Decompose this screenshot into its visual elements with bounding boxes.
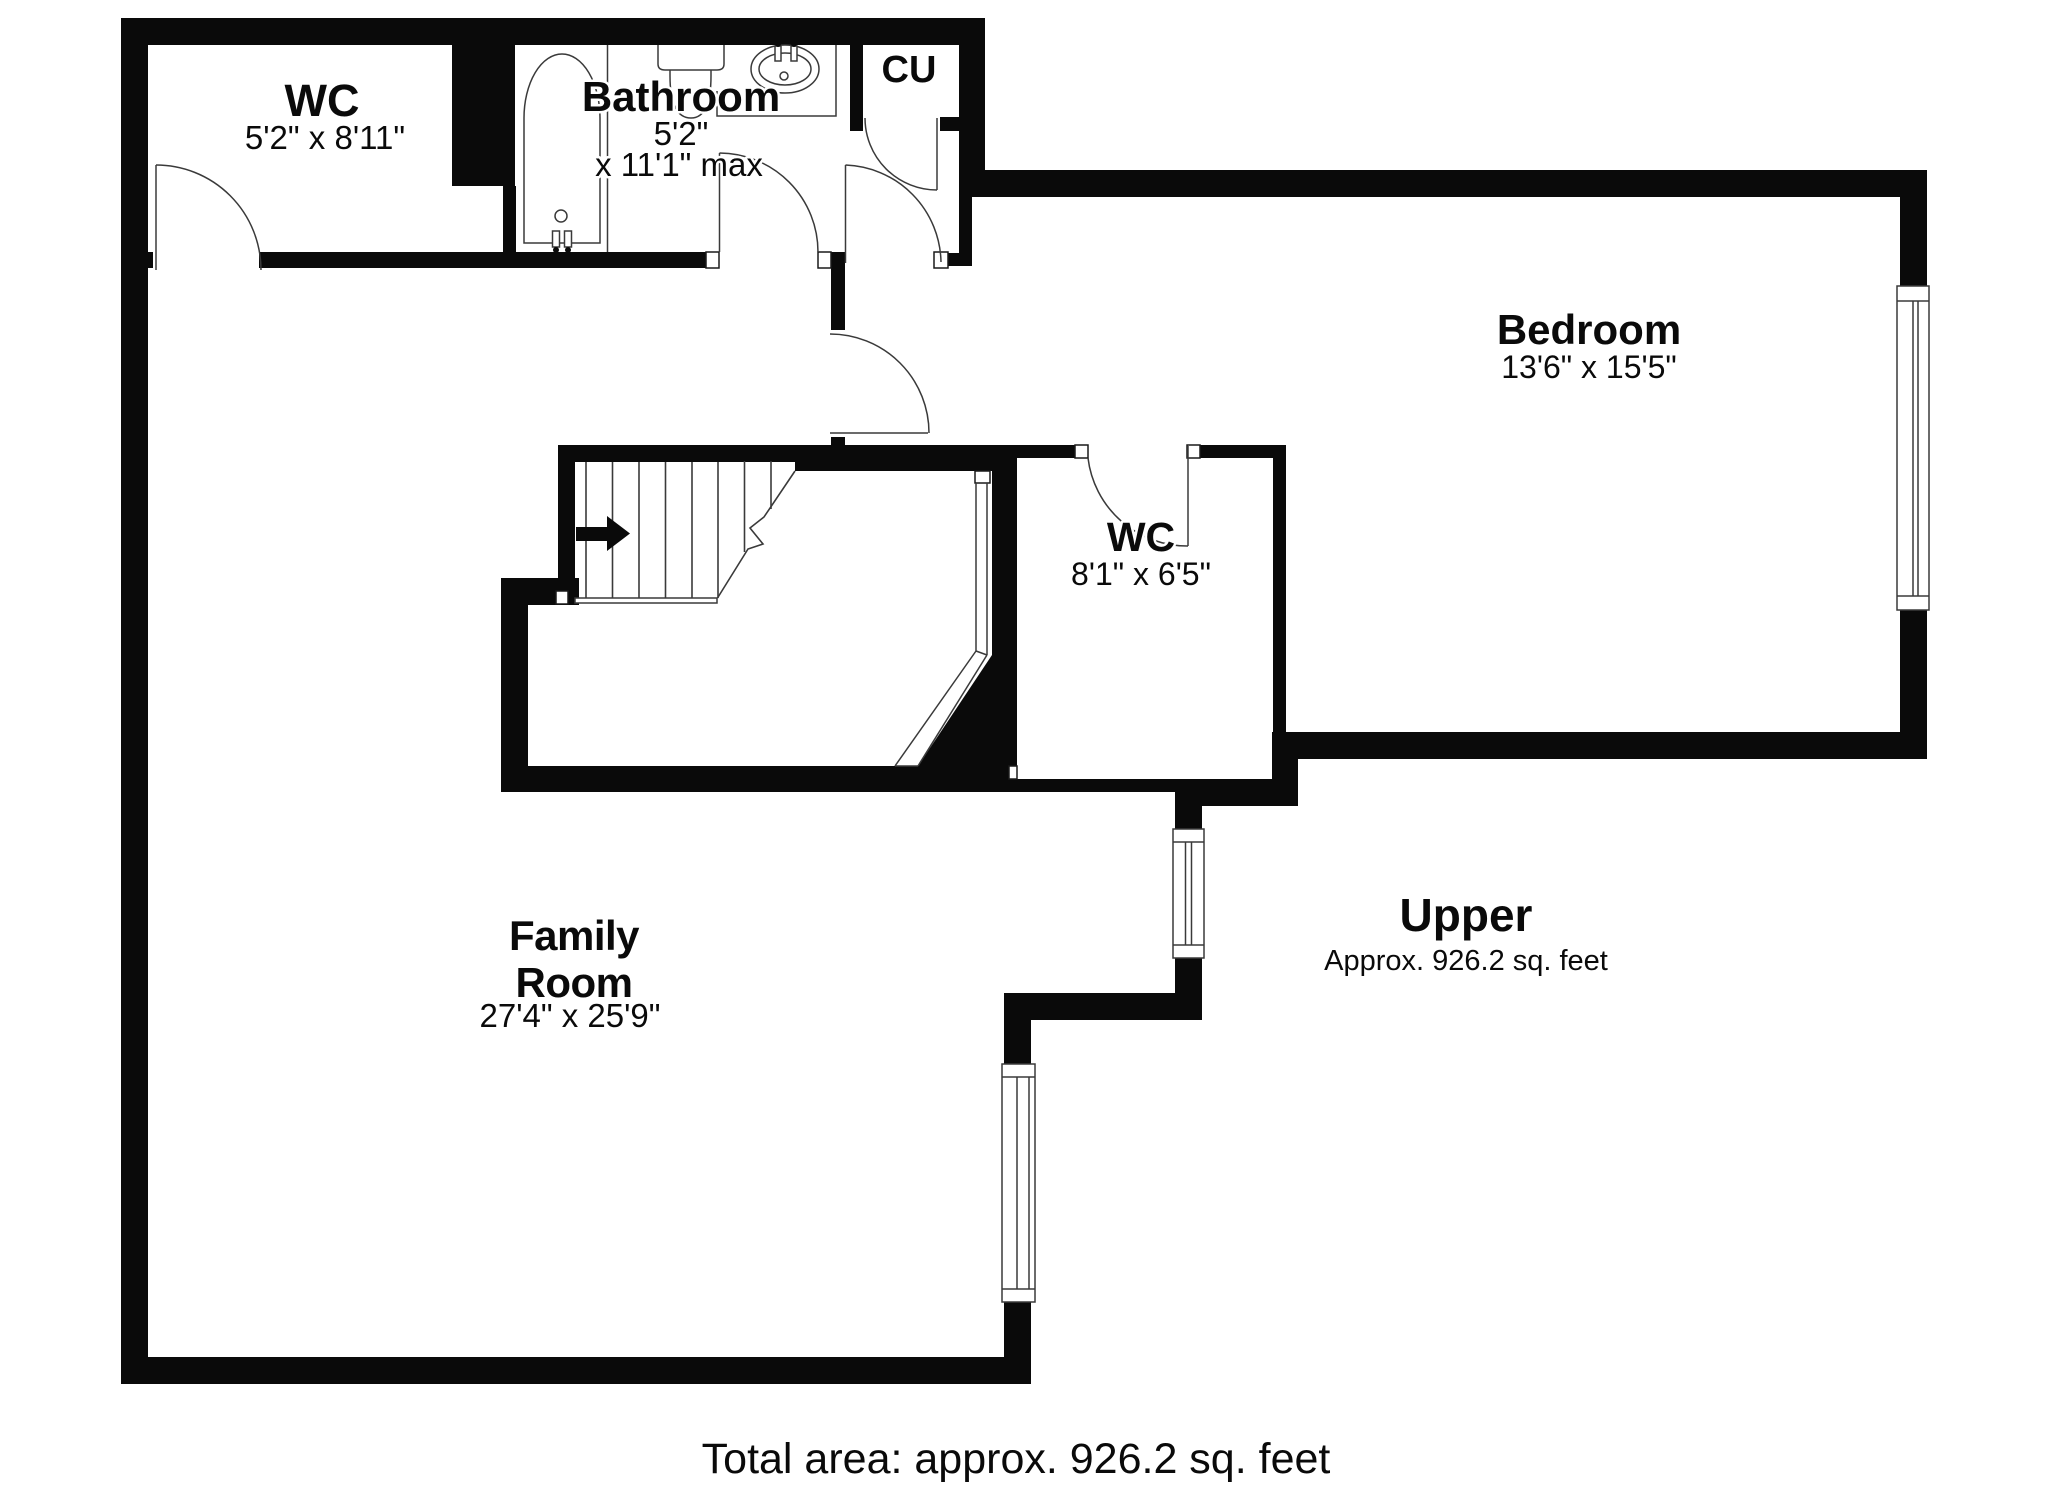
svg-text:8'1" x 6'5": 8'1" x 6'5" [1071,556,1211,592]
svg-text:5'2" x 8'11": 5'2" x 8'11" [245,119,405,156]
svg-text:Upper: Upper [1400,889,1533,941]
svg-text:Total area: approx. 926.2 sq.: Total area: approx. 926.2 sq. feet [702,1435,1331,1483]
svg-text:Bedroom: Bedroom [1497,306,1681,353]
svg-text:Approx. 926.2 sq. feet: Approx. 926.2 sq. feet [1324,945,1608,977]
svg-text:x 11'1" max: x 11'1" max [595,146,763,183]
svg-text:Family: Family [509,912,640,959]
svg-text:Bathroom: Bathroom [582,73,780,120]
svg-text:CU: CU [882,49,937,91]
svg-text:13'6" x 15'5": 13'6" x 15'5" [1501,349,1677,385]
svg-text:27'4" x 25'9": 27'4" x 25'9" [480,997,661,1034]
svg-text:WC: WC [1107,514,1175,560]
